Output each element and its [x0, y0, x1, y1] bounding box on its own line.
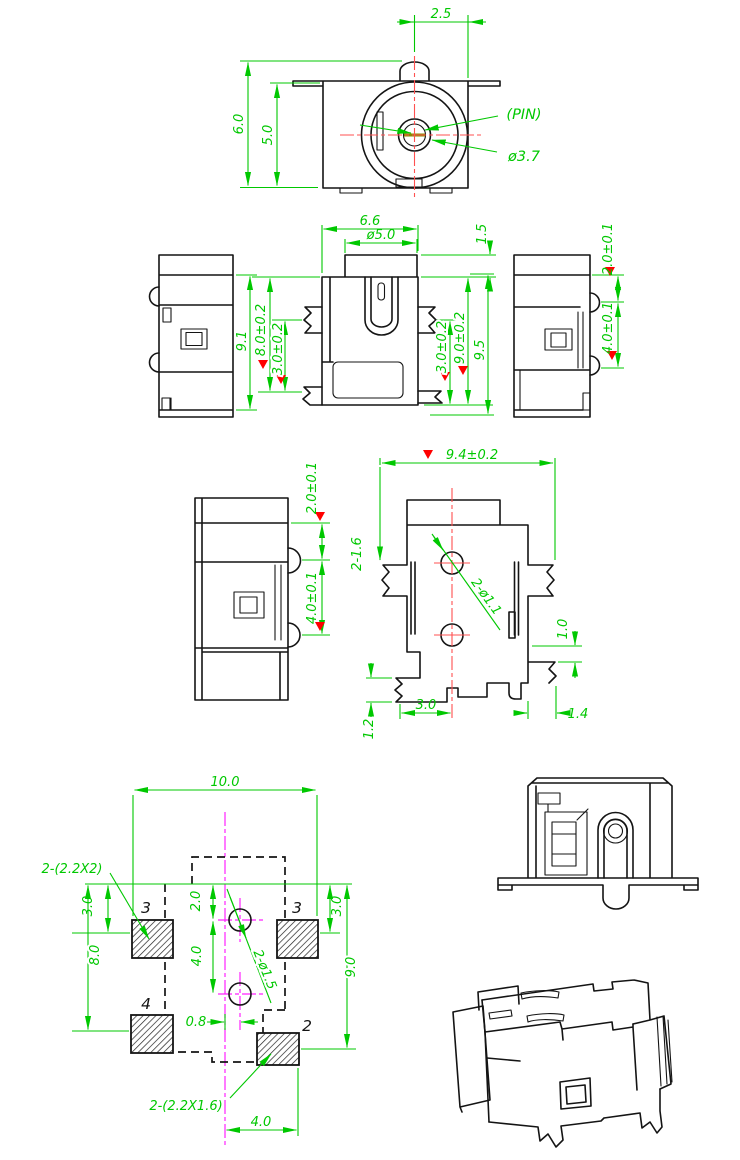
dim-left-height: 8.0	[88, 945, 103, 966]
pad-3-right	[277, 920, 318, 958]
drawing-canvas: 2.5 6.0 5.0 (PIN) ø3.7 9.1 6.6 ø	[0, 0, 740, 1160]
rear-pin-ring	[604, 819, 628, 843]
side-tabs	[303, 307, 442, 405]
rear-pin-hole	[609, 824, 623, 838]
dim-height: 6.0	[232, 114, 247, 135]
pad-3-left	[132, 920, 173, 958]
center-pin	[378, 283, 385, 300]
dim-left-top: 3.0	[81, 896, 96, 917]
top-view-slot	[365, 277, 398, 335]
datum-triangle	[423, 450, 433, 459]
dim-center-pitch: 4.0	[190, 946, 205, 967]
dim-body-height: 8.0±0.2	[254, 304, 269, 356]
dim-right-height: 9.0	[344, 957, 359, 978]
dim-tab-right: 3.0±0.2	[435, 321, 450, 373]
rear-bracket	[538, 793, 588, 875]
bottom-outline	[382, 500, 556, 702]
dim-barrel: ø5.0	[366, 228, 396, 243]
note-top: 2-(2.2X2)	[42, 862, 103, 877]
dim-step: 1.0	[556, 619, 571, 640]
pad-note-leader-bottom	[230, 1054, 271, 1098]
dim-pin-pitch: 4.0±0.1	[305, 572, 320, 624]
row2-left-side-view: 9.1	[150, 255, 257, 417]
dim-width: 6.6	[360, 214, 381, 229]
base-box	[333, 362, 403, 398]
dim-pin-pitch: 4.0±0.1	[601, 302, 616, 354]
row3-bottom-view: 9.4±0.2 2-1.6 2-ø1.1 1.0 1.2 3.0 1.4	[350, 448, 588, 739]
side-outline	[159, 255, 233, 417]
dim-pin-offset: 2.5	[431, 7, 452, 22]
rear-view	[498, 778, 698, 909]
dim-center-top: 2.0	[189, 891, 204, 912]
dim-tab-left: 3.0±0.2	[271, 323, 286, 375]
dim-inner-height: 5.0	[261, 125, 276, 146]
side-lugs	[150, 287, 159, 372]
pad-2	[257, 1033, 299, 1065]
pad-4	[131, 1015, 173, 1053]
dim-pin-top: 2.0±0.1	[305, 462, 320, 514]
dim-holes: 2-ø1.5	[250, 948, 279, 992]
pin-label: (PIN)	[506, 107, 541, 123]
dim-bottom-width: 4.0	[251, 1115, 272, 1130]
dia-leader-left	[360, 125, 411, 133]
pad-label-2: 2	[302, 1017, 312, 1035]
row3-side-view: 2.0±0.1 4.0±0.1	[195, 462, 330, 700]
iso-slots	[489, 991, 564, 1022]
dim-right-top: 3.0	[330, 896, 345, 917]
front-view: 2.5 6.0 5.0 (PIN) ø3.7	[232, 7, 542, 198]
side-outline	[514, 255, 590, 417]
dim-foot-height: 1.2	[362, 719, 377, 740]
dim-hole-offset: 0.8	[186, 1015, 207, 1030]
pcb-centerlines	[218, 812, 264, 1146]
iso-bottom-feet	[489, 1089, 662, 1147]
dim-cap: 1.5	[475, 224, 490, 245]
dim-foot-right: 1.4	[568, 707, 589, 722]
pad-label-4: 4	[141, 995, 151, 1013]
side-lugs	[590, 293, 600, 375]
front-details	[340, 112, 452, 193]
iso-top	[482, 980, 671, 1089]
dim-side-height: 9.1	[235, 331, 250, 352]
iso-square-hole	[560, 1078, 591, 1109]
pad-label-3-left: 3	[141, 899, 151, 917]
front-body-outline	[293, 62, 500, 188]
dim-pin-top: 2.0±0.1	[601, 223, 616, 275]
note-bottom: 2-(2.2X1.6)	[149, 1099, 222, 1114]
pad-label-3-right: 3	[292, 899, 302, 917]
dim-foot-offset: 3.0	[416, 698, 437, 713]
dim-width: 9.4±0.2	[446, 448, 498, 463]
pcb-land-pattern: 10.0 2-(2.2X2) 3.0 8.0 2.0 4.0 0.8 2-ø1.…	[42, 775, 359, 1146]
side-details	[234, 565, 281, 640]
isometric-view	[453, 980, 672, 1147]
dim-width: 10.0	[211, 775, 240, 790]
row2-right-side-view: 2.0±0.1 4.0±0.1	[514, 223, 624, 417]
dim-overall: 9.5	[473, 340, 488, 361]
side-lugs	[288, 548, 301, 647]
ext-lines	[72, 795, 356, 1136]
dim-slots: 2-1.6	[350, 537, 365, 571]
side-details	[162, 308, 207, 410]
technical-drawing: 2.5 6.0 5.0 (PIN) ø3.7 9.1 6.6 ø	[0, 0, 740, 1160]
side-outline	[195, 498, 288, 700]
side-details	[520, 312, 590, 410]
dim-pin-dia: ø3.7	[507, 149, 541, 165]
row2-top-view: 6.6 ø5.0 1.5 8.0±0.2 3.0±0.2 3.0±0.2 9.0…	[252, 214, 496, 415]
dim-body-right: 9.0±0.2	[453, 312, 468, 364]
dim-holes: 2-ø1.1	[468, 576, 505, 618]
datum-triangle	[258, 360, 268, 369]
iso-front-face	[482, 1000, 637, 1122]
datum-triangle	[458, 366, 468, 375]
pin-leader	[425, 116, 498, 130]
rear-keyhole	[598, 813, 633, 879]
